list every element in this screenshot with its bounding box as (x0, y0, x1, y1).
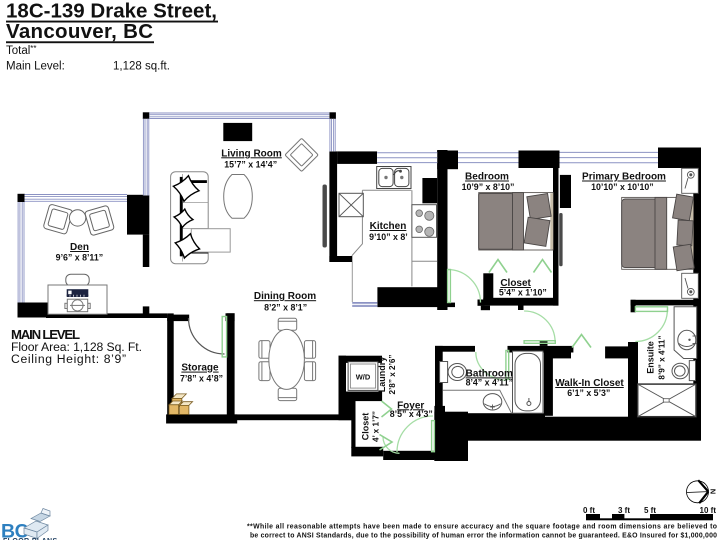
svg-text:9’10” x 8’: 9’10” x 8’ (369, 232, 408, 242)
svg-text:8’2” x 8’1”: 8’2” x 8’1” (264, 302, 307, 312)
svg-text:15’7” x 14’4”: 15’7” x 14’4” (224, 160, 277, 170)
svg-text:10 ft: 10 ft (700, 506, 717, 515)
svg-text:Total**: Total** (6, 44, 37, 57)
svg-text:Ensuite: Ensuite (646, 341, 656, 374)
svg-text:be correct to ANSI Standards,: be correct to ANSI Standards, due to the… (250, 532, 717, 539)
svg-text:6’1” x 5’3”: 6’1” x 5’3” (567, 388, 610, 398)
svg-text:Living Room: Living Room (221, 148, 282, 159)
svg-text:Main Level:: Main Level: (6, 61, 65, 73)
svg-text:0 ft: 0 ft (583, 506, 595, 515)
svg-text:N: N (708, 489, 717, 494)
svg-text:Closet: Closet (361, 413, 371, 441)
svg-text:Den: Den (70, 242, 89, 253)
svg-text:7’8” x 4’8”: 7’8” x 4’8” (180, 373, 223, 383)
svg-text:10’9” x 8’10”: 10’9” x 8’10” (462, 182, 515, 192)
svg-text:1,128 sq.ft.: 1,128 sq.ft. (113, 61, 170, 73)
svg-text:5’4” x 1’10”: 5’4” x 1’10” (499, 287, 547, 297)
svg-text:10’10” x 10’10”: 10’10” x 10’10” (591, 182, 654, 192)
svg-text:9’6” x 8’11”: 9’6” x 8’11” (56, 252, 103, 262)
svg-text:5 ft: 5 ft (644, 506, 656, 515)
svg-text:8’4” x 4’11”: 8’4” x 4’11” (466, 378, 513, 388)
svg-text:8’5” x 4’3”: 8’5” x 4’3” (390, 409, 433, 419)
svg-text:Dining Room: Dining Room (254, 291, 316, 302)
svg-text:18C-139 Drake Street,: 18C-139 Drake Street, (6, 0, 217, 23)
svg-text:3 ft: 3 ft (618, 506, 630, 515)
svg-text:W/D: W/D (356, 373, 371, 382)
svg-text:Vancouver, BC: Vancouver, BC (6, 20, 153, 43)
svg-text:2’8” x 2’6”: 2’8” x 2’6” (388, 354, 397, 394)
svg-text:8’9” x 4’11”: 8’9” x 4’11” (658, 335, 667, 379)
svg-text:4’ x 1’7”: 4’ x 1’7” (371, 411, 380, 442)
svg-text:**While all reasonable attempt: **While all reasonable attempts have bee… (247, 524, 717, 531)
svg-text:Storage: Storage (181, 363, 219, 374)
svg-text:Kitchen: Kitchen (370, 221, 407, 232)
svg-text:Laundry: Laundry (377, 357, 387, 393)
svg-text:Ceiling Height: 8’9”: Ceiling Height: 8’9” (11, 352, 126, 366)
